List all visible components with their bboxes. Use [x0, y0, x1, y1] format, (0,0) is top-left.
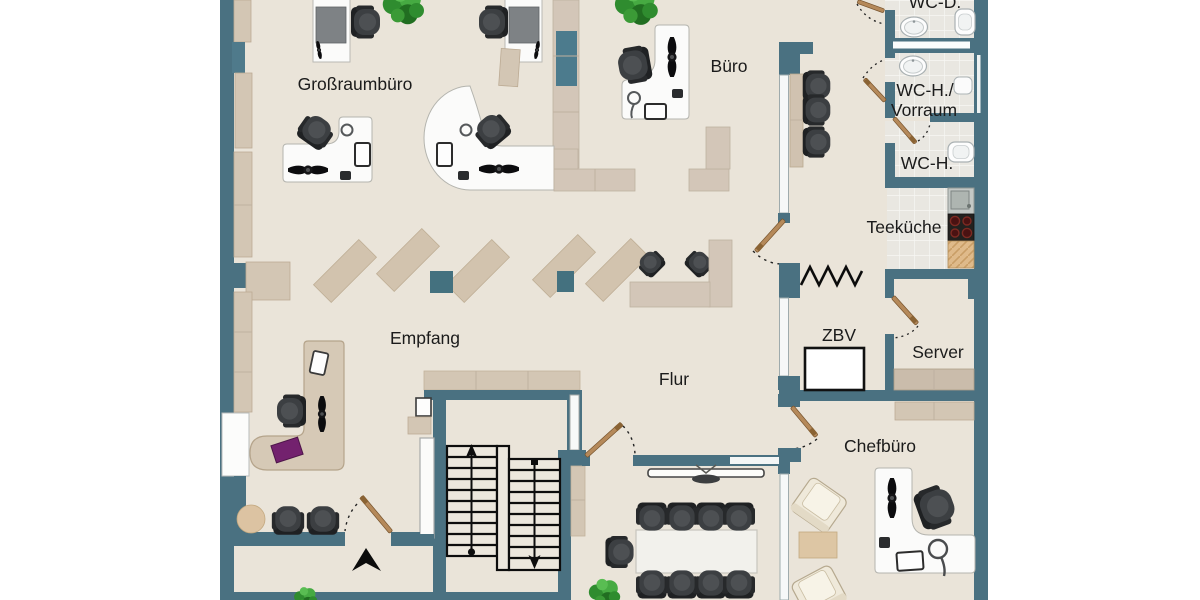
- svg-text:Empfang: Empfang: [390, 328, 460, 348]
- svg-text:WC-D.: WC-D.: [909, 0, 961, 12]
- svg-text:WC-H.: WC-H.: [901, 153, 953, 173]
- svg-text:Teeküche: Teeküche: [867, 217, 942, 237]
- svg-text:Chefbüro: Chefbüro: [844, 436, 916, 456]
- svg-text:Großraumbüro: Großraumbüro: [298, 74, 413, 94]
- svg-text:Flur: Flur: [659, 369, 689, 389]
- svg-text:Server: Server: [912, 342, 964, 362]
- svg-text:ZBV: ZBV: [822, 325, 856, 345]
- svg-text:Büro: Büro: [711, 56, 748, 76]
- svg-text:Vorraum: Vorraum: [891, 100, 957, 120]
- svg-text:WC-H./: WC-H./: [896, 80, 953, 100]
